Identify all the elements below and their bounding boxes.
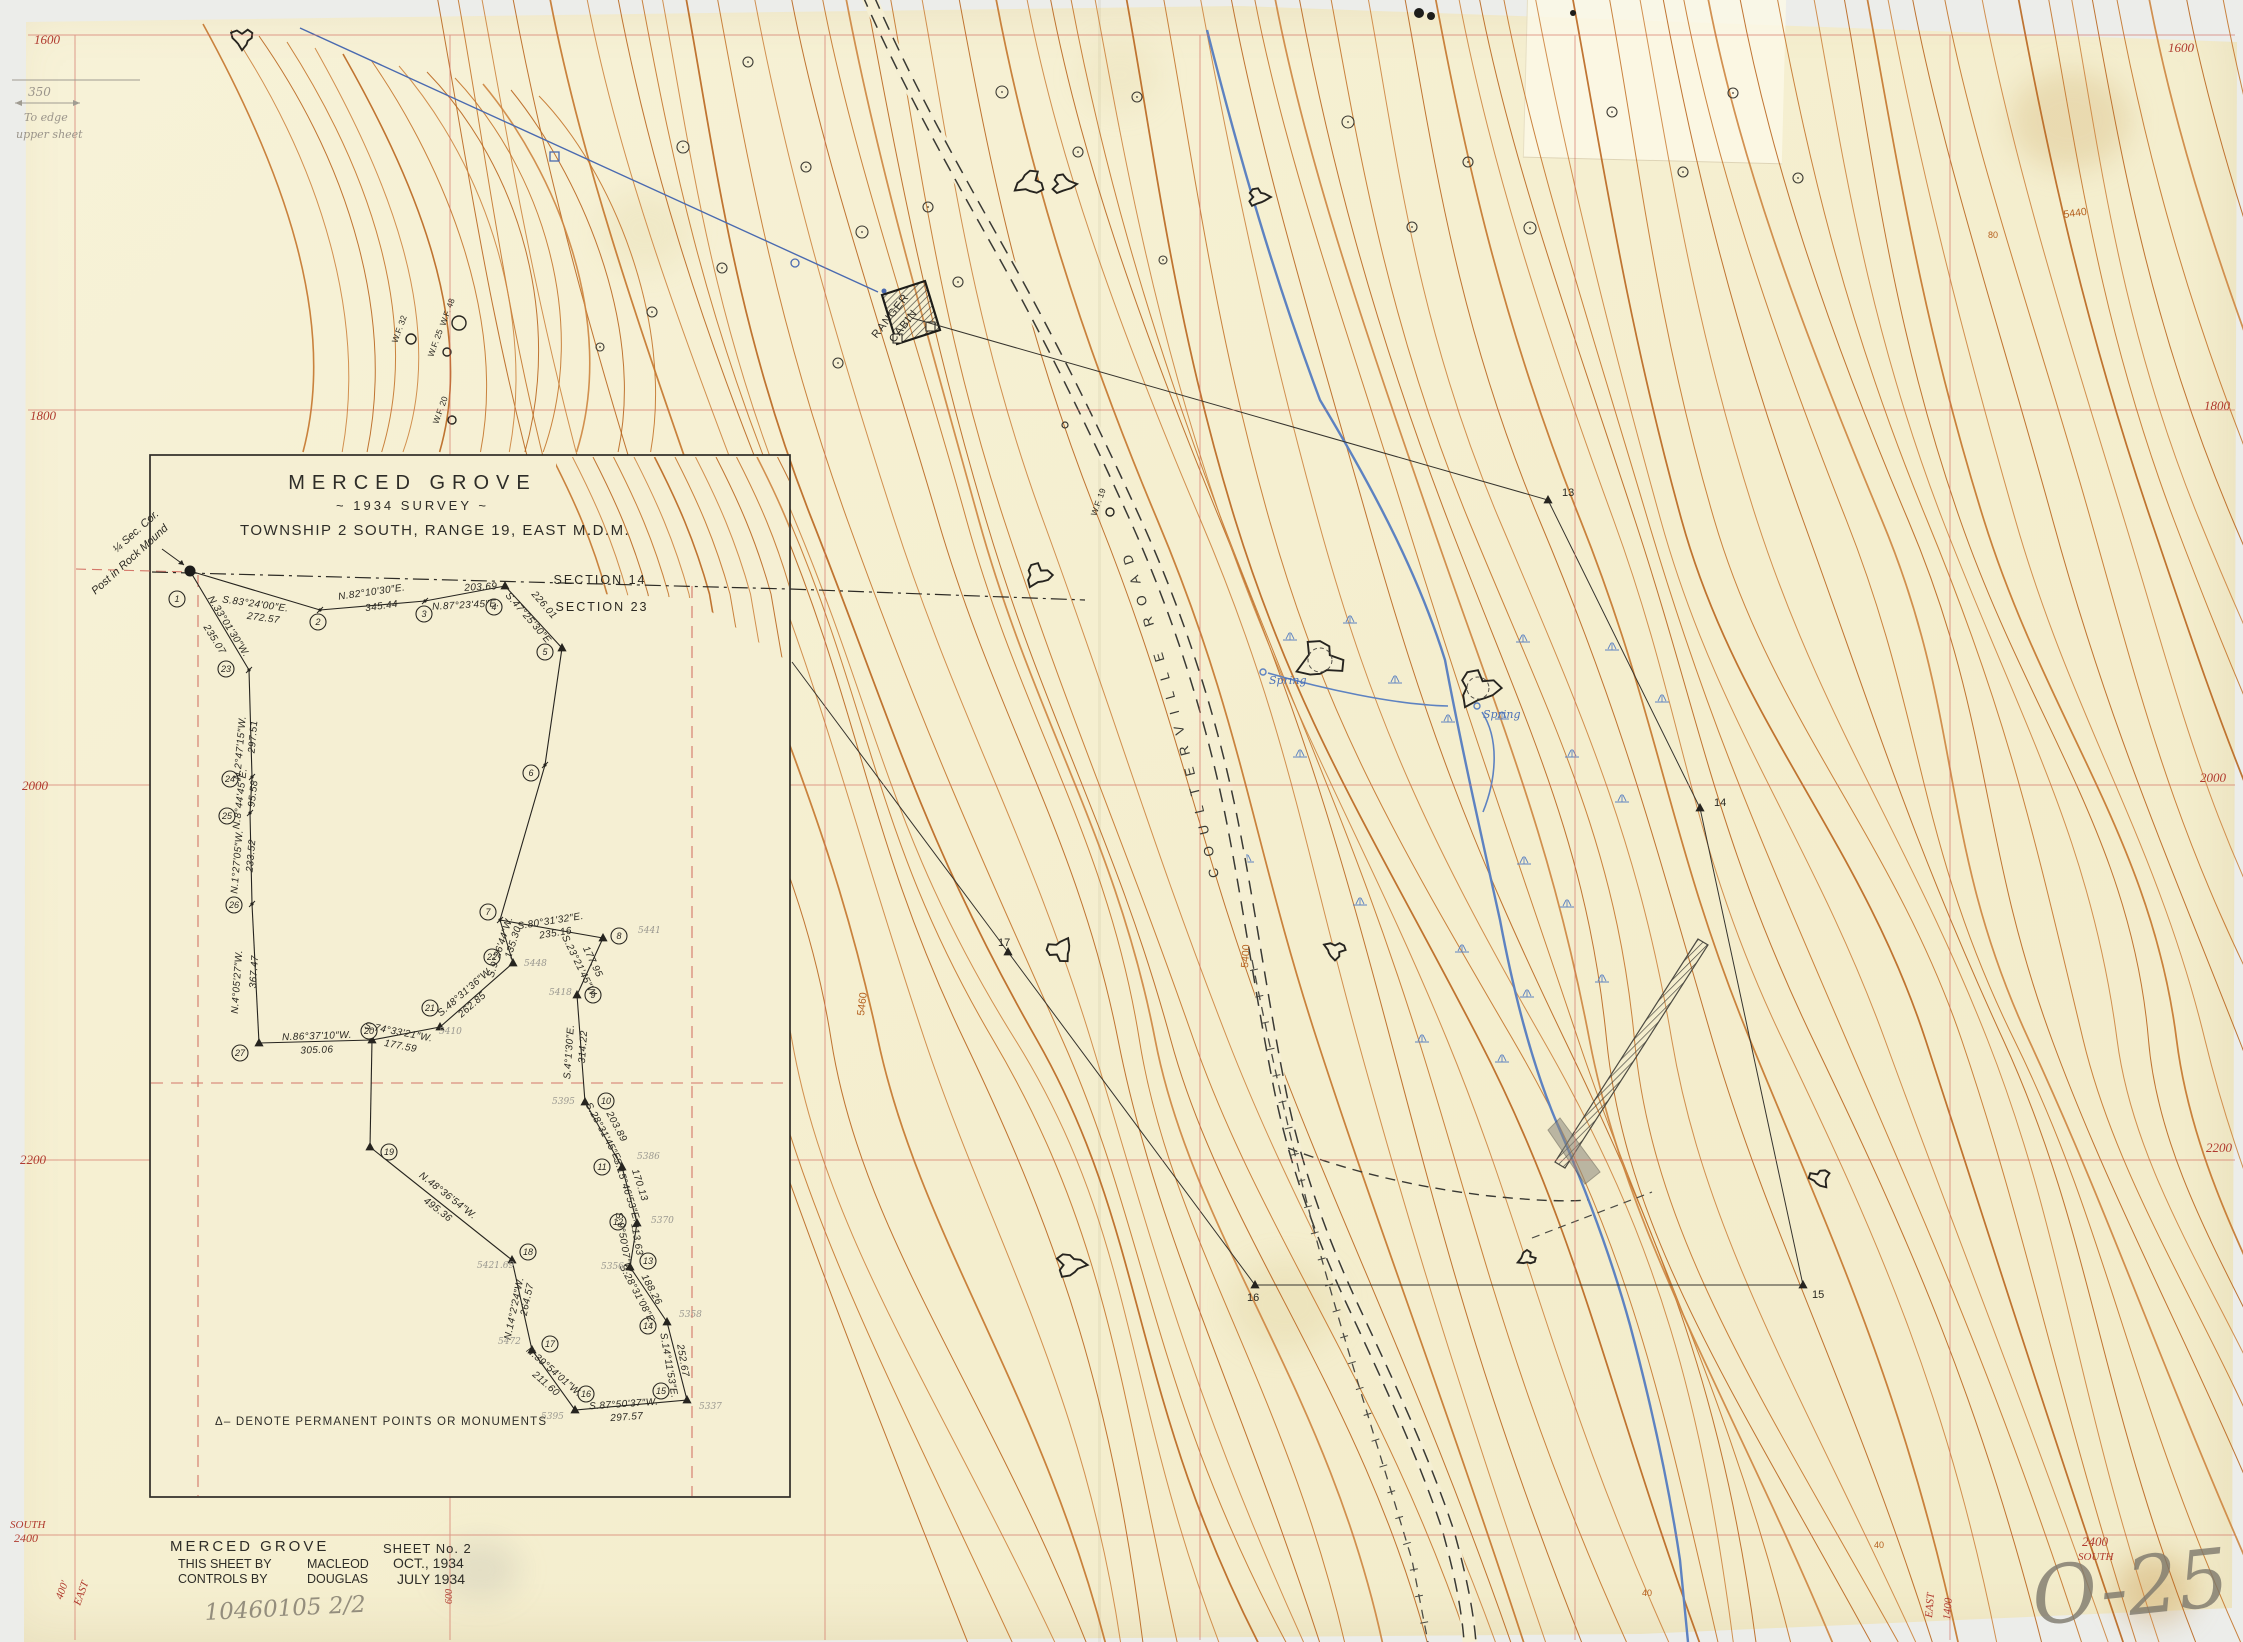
tree-center: [1732, 92, 1734, 94]
footer-sheet-no: SHEET No. 2: [383, 1541, 472, 1556]
roads: [862, 0, 1652, 1642]
marsh-symbol: [1283, 632, 1297, 640]
contour-line: [1253, 0, 1798, 1642]
map-title: MERCED GROVE: [240, 472, 585, 495]
road-edge: [874, 0, 1476, 1642]
contour-line: [287, 42, 396, 452]
contour-elevation-label: 5460: [855, 992, 870, 1017]
contour-elevation-label: 40: [1642, 1588, 1652, 1598]
pencil-elevation: 5410: [439, 1027, 462, 1037]
tree-center: [1529, 227, 1531, 229]
tree-center: [1001, 91, 1003, 93]
station-number: 21: [424, 1003, 435, 1013]
legend-note: Δ– DENOTE PERMANENT POINTS OR MONUMENTS: [215, 1416, 547, 1428]
edge-note-upper-sheet: upper sheet: [16, 128, 83, 141]
rock-outcrop: [1809, 1170, 1830, 1187]
contour-line: [716, 0, 1302, 1642]
grid-coordinate-label: EAST: [71, 1579, 91, 1608]
contour-line: [511, 90, 624, 452]
flume: [1555, 939, 1708, 1168]
inset-border: [150, 455, 790, 1497]
pencil-elevation: 5358: [679, 1310, 702, 1320]
road-edge: [862, 0, 1464, 1641]
station-number: 8: [616, 931, 621, 941]
pencil-elevation: 5421.69: [477, 1261, 514, 1271]
main-station-number: 13: [1562, 487, 1574, 499]
pencil-elevation: 5370: [651, 1216, 674, 1226]
tree-symbol: [452, 316, 466, 330]
spring-symbol: [1260, 669, 1266, 675]
marsh-symbol: [1605, 642, 1619, 650]
footer-by-label: THIS SHEET BY: [178, 1557, 272, 1571]
grid-coordinate-label: 2400: [14, 1531, 38, 1545]
station-number: 18: [523, 1247, 533, 1257]
contour-line: [2147, 0, 2243, 1642]
tree-center: [599, 346, 601, 348]
station-number: 23: [220, 664, 231, 674]
corner-monument: [185, 566, 196, 577]
section-label-lower: SECTION 23: [556, 600, 649, 614]
contour-elevation-label: 40: [1874, 1540, 1884, 1550]
tree-center: [805, 166, 807, 168]
contour-line: [1273, 0, 1844, 1642]
pipeline-cabin: [300, 28, 940, 344]
flume-structure: [1548, 939, 1708, 1184]
grid-coordinate-label: 2000: [2200, 770, 2227, 785]
pencil-elevation: 5448: [524, 959, 547, 969]
pencil-elevation: 5337: [699, 1402, 722, 1412]
contour-line: [2221, 0, 2243, 1642]
grid-coordinate-label: EAST: [1923, 1591, 1937, 1619]
marsh-symbol: [1595, 974, 1609, 982]
edge-note-to-edge: To edge: [24, 111, 68, 124]
footer-by-name: MACLEOD: [307, 1557, 369, 1571]
footer-by-date: OCT., 1934: [393, 1555, 464, 1571]
tree-center: [682, 146, 684, 148]
marsh-symbol: [1517, 856, 1531, 864]
station-number: 26: [228, 900, 239, 910]
rock-outcrop: [1053, 174, 1078, 193]
footer-name: MERCED GROVE: [170, 1538, 329, 1555]
contour-line: [1162, 0, 1725, 1642]
rock-outcrop: [1462, 670, 1502, 707]
contour-elevation-label: 80: [1988, 230, 1998, 240]
tree-center: [747, 61, 749, 63]
tree-symbol: [406, 334, 416, 344]
pencil-elevation: 5472: [498, 1337, 521, 1347]
grid-coordinate-label: 600: [444, 1589, 455, 1604]
tree-center: [957, 281, 959, 283]
tree-center: [927, 206, 929, 208]
rock-outcrop: [1324, 943, 1346, 960]
tree-center: [1797, 177, 1799, 179]
contour-line: [1229, 0, 1759, 1642]
rock-outcrop: [1249, 188, 1271, 206]
tree-symbol: [448, 416, 456, 424]
station-number: 13: [643, 1256, 653, 1266]
station-number: 11: [597, 1162, 606, 1172]
tree-label: W.F. 25: [426, 328, 445, 358]
rock-outcrop: [1518, 1250, 1536, 1263]
station-number: 2: [314, 617, 320, 627]
contour-line: [844, 0, 1388, 1642]
distance-label: 305.06: [300, 1044, 333, 1056]
pencil-elevation: 5418: [549, 988, 572, 998]
contour-elevation-label: 5400: [1239, 944, 1253, 968]
main-station-number: 15: [1812, 1289, 1824, 1301]
survey-map-sheet: 1314151617W.F. 32W.F. 48W.F. 25W.F. 20W.…: [0, 0, 2243, 1642]
contour-line: [231, 30, 349, 452]
pipeline: [300, 28, 878, 292]
contour-line: [1477, 0, 2048, 1642]
contour-line: [259, 36, 375, 452]
marsh-symbol: [1293, 749, 1307, 757]
marsh-symbol: [1441, 714, 1455, 722]
grid-coordinate-label: 1400: [1941, 1597, 1955, 1620]
tree-symbol: [1106, 508, 1114, 516]
rock-outcrop: [1297, 641, 1344, 675]
rock-outcrop: [1057, 1254, 1088, 1277]
contour-line: [1571, 0, 2133, 1642]
contour-line: [1403, 0, 1941, 1642]
distance-label: 203.69: [463, 581, 498, 594]
spring-symbol: [1474, 703, 1480, 709]
station-number: 19: [384, 1147, 394, 1157]
distance-label: 367.47: [248, 955, 261, 989]
trail-tick: [1380, 1465, 1388, 1467]
grid-coordinate-label: 2200: [2206, 1140, 2233, 1155]
contour-line: [1812, 0, 2243, 1642]
station-number: 6: [528, 768, 533, 778]
contour-elevation-label: 5440: [2063, 206, 2088, 221]
spring-label: Spring: [1269, 674, 1306, 687]
contour-line: [1865, 0, 2243, 1642]
hydrography: [1207, 30, 1688, 1642]
marsh-symbol: [1520, 989, 1534, 997]
marsh-symbol: [1615, 794, 1629, 802]
tree-center: [1682, 171, 1684, 173]
contour-line: [2070, 0, 2243, 1642]
footer-controls-name: DOUGLAS: [307, 1572, 368, 1586]
contour-line: [203, 24, 314, 452]
marsh-symbol: [1655, 694, 1669, 702]
ink-mark: [1427, 12, 1435, 20]
tree-center: [1611, 111, 1613, 113]
contour-line: [1534, 0, 2119, 1642]
inset-title-block: MERCED GROVE ~ 1934 SURVEY ~ TOWNSHIP 2 …: [240, 472, 585, 539]
contour-line: [1434, 0, 1964, 1642]
tree-center: [651, 311, 653, 313]
grid-coordinate-label: SOUTH: [10, 1519, 47, 1531]
tree-center: [1162, 259, 1164, 261]
contour-line: [2047, 0, 2243, 1642]
contour-line: [343, 54, 451, 452]
inset-plat: SECTION 14SECTION 2312345678910111213141…: [76, 455, 1085, 1497]
map-subtitle: ~ 1934 SURVEY ~: [240, 498, 585, 513]
grid-coordinate-label: 1800: [2204, 398, 2231, 413]
stream: [1207, 30, 1688, 1642]
tree-center: [1077, 151, 1079, 153]
tree-center: [1411, 226, 1413, 228]
spring-label: Spring: [1483, 708, 1520, 721]
station-number: 1: [174, 594, 179, 604]
main-station-number: 14: [1714, 797, 1726, 809]
contour-line: [371, 60, 487, 452]
map-canvas: 1314151617W.F. 32W.F. 48W.F. 25W.F. 20W.…: [0, 0, 2243, 1642]
contour-line: [1682, 0, 2243, 1642]
marsh-symbol: [1495, 1054, 1509, 1062]
contour-line: [455, 78, 561, 452]
station-number: 25: [221, 811, 233, 821]
rock-outcrop: [1015, 171, 1044, 193]
tree-label: W.F. 48: [438, 297, 457, 327]
tree-center: [721, 267, 723, 269]
tree-center: [1136, 96, 1138, 98]
marsh-symbol: [1565, 749, 1579, 757]
tree-center: [861, 231, 863, 233]
file-number-handwritten: 10460105 2/2: [204, 1592, 367, 1626]
marsh-symbol: [1560, 899, 1574, 907]
plate-number-handwritten: O-25: [2027, 1531, 2233, 1642]
marsh-symbol: [1343, 615, 1357, 623]
contour-line: [821, 0, 1351, 1642]
contour-line: [1980, 0, 2243, 1642]
edge-note-350: 350: [28, 85, 51, 99]
grid-coordinate-label: 400': [54, 1579, 72, 1601]
tree-center: [1467, 161, 1469, 163]
marsh-symbol: [1353, 897, 1367, 905]
pencil-elevation: 5441: [638, 926, 661, 936]
flume-chute: [1548, 1118, 1600, 1184]
station-number: 27: [234, 1048, 246, 1058]
pencil-elevation: 5386: [637, 1152, 660, 1162]
distance-label: 314.22: [577, 1030, 590, 1064]
tree-center: [837, 362, 839, 364]
contour-line: [1943, 0, 2243, 1642]
contour-line: [2185, 0, 2243, 1642]
ink-mark: [1570, 10, 1576, 16]
township-line: TOWNSHIP 2 SOUTH, RANGE 19, EAST M.D.M.: [240, 522, 585, 539]
footer-controls-date: JULY 1934: [397, 1571, 465, 1587]
contour-line: [315, 48, 419, 452]
section-label-upper: SECTION 14: [554, 573, 647, 587]
trail-tick: [1403, 1542, 1411, 1544]
grid-coordinate-label: 1600: [34, 32, 61, 47]
rock-outcrop: [231, 30, 252, 51]
pipeline-valve: [791, 259, 799, 267]
rock-outcrop: [1028, 563, 1053, 587]
contour-line: [1457, 0, 2002, 1642]
main-station-number: 17: [998, 937, 1010, 949]
grid-coordinate-label: 1800: [30, 408, 57, 423]
trail-tick: [1348, 1362, 1356, 1364]
main-station-number: 16: [1247, 1292, 1259, 1304]
station-number: 3: [421, 609, 426, 619]
footer-controls-label: CONTROLS BY: [178, 1572, 268, 1586]
marsh-symbol: [1388, 675, 1402, 683]
pencil-elevation: 5356: [601, 1262, 624, 1272]
grid-coordinate-label: 2200: [20, 1152, 47, 1167]
grid-coordinate-label: 1600: [2168, 40, 2195, 55]
contour-line: [2115, 0, 2243, 1642]
contour-line: [1069, 0, 1639, 1642]
contour-line: [1738, 0, 2243, 1642]
tree-center: [1347, 121, 1349, 123]
ink-mark: [1414, 8, 1424, 18]
station-number: 17: [545, 1339, 556, 1349]
grid-coordinate-label: 2000: [22, 778, 49, 793]
pencil-elevation: 5395: [552, 1097, 575, 1107]
station-number: 15: [656, 1386, 667, 1396]
station-number: 10: [601, 1096, 611, 1106]
marsh-symbol: [1455, 944, 1469, 952]
section-line-extension: [790, 589, 1085, 600]
contour-line: [1502, 0, 2091, 1642]
